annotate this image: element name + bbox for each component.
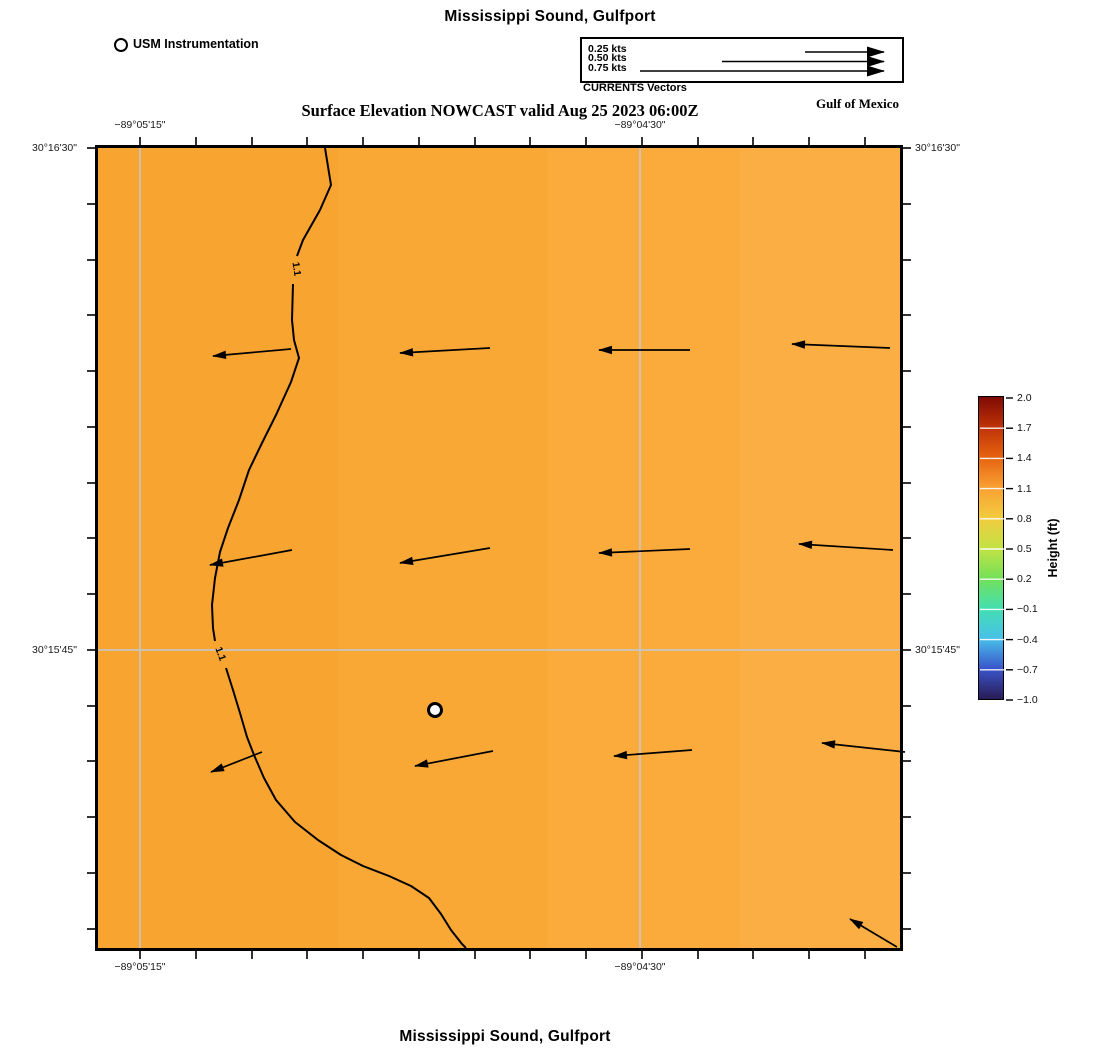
colorbar-tick-label: 0.2 <box>1017 573 1057 585</box>
lon-axis-label-bottom: −89°04'30" <box>580 961 700 973</box>
lon-axis-label-top: −89°04'30" <box>580 119 700 131</box>
map-canvas <box>95 145 903 951</box>
colorbar-tick-label: 0.8 <box>1017 513 1057 525</box>
plot-page: Mississippi Sound, Gulfport USM Instrume… <box>0 0 1100 1050</box>
lon-axis-label-bottom: −89°05'15" <box>80 961 200 973</box>
colorbar-tick-label: −1.0 <box>1017 694 1057 706</box>
page-title-top: Mississippi Sound, Gulfport <box>0 8 1100 26</box>
lat-axis-label-right: 30°16'30" <box>915 142 995 154</box>
lat-axis-label-left: 30°15'45" <box>7 644 77 656</box>
colorbar-tick-label: 0.5 <box>1017 543 1057 555</box>
page-title-bottom: Mississippi Sound, Gulfport <box>0 1028 1010 1046</box>
colorbar-tick-label: 2.0 <box>1017 392 1057 404</box>
colorbar-tick-label: 1.7 <box>1017 422 1057 434</box>
region-label: Gulf of Mexico <box>780 96 935 112</box>
colorbar-tick-label: 1.1 <box>1017 483 1057 495</box>
usm-legend-label: USM Instrumentation <box>133 37 259 51</box>
usm-station-legend-icon <box>114 38 128 52</box>
colorbar-tick-label: 1.4 <box>1017 452 1057 464</box>
vector-legend-entry-075: 0.75 kts <box>588 63 627 73</box>
lat-axis-label-left: 30°16'30" <box>7 142 77 154</box>
vector-legend-box: 0.25 kts 0.50 kts 0.75 kts <box>580 37 904 83</box>
lat-axis-label-right: 30°15'45" <box>915 644 995 656</box>
colorbar-tick-label: −0.1 <box>1017 603 1057 615</box>
lon-axis-label-top: −89°05'15" <box>80 119 200 131</box>
vector-legend-caption: CURRENTS Vectors <box>583 82 687 94</box>
colorbar-tick-label: −0.7 <box>1017 664 1057 676</box>
colorbar-tick-label: −0.4 <box>1017 634 1057 646</box>
